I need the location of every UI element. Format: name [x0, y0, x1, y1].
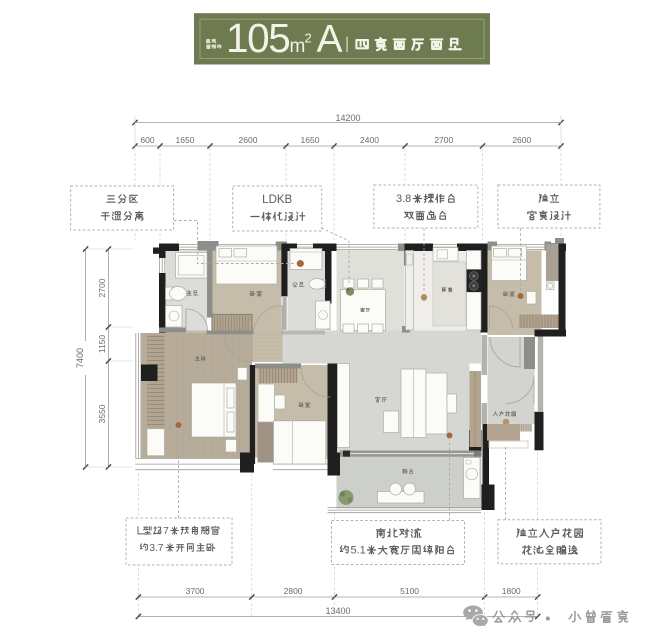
svg-text:600: 600: [140, 135, 154, 145]
svg-text:1650: 1650: [176, 135, 195, 145]
svg-text:2600: 2600: [512, 135, 531, 145]
svg-text:LDKB: LDKB: [262, 194, 292, 206]
svg-text:14200: 14200: [335, 113, 360, 123]
svg-text:1150: 1150: [97, 335, 107, 354]
svg-text:13400: 13400: [325, 606, 350, 616]
svg-text:3700: 3700: [186, 586, 205, 596]
svg-text:5100: 5100: [400, 586, 419, 596]
svg-text:2400: 2400: [360, 135, 379, 145]
svg-text:2800: 2800: [284, 586, 303, 596]
svg-text:A: A: [317, 18, 343, 61]
svg-text:1650: 1650: [301, 135, 320, 145]
svg-text:3.7: 3.7: [150, 543, 164, 554]
svg-text:3550: 3550: [97, 404, 107, 423]
svg-text:3.8: 3.8: [396, 193, 411, 205]
svg-text:2700: 2700: [97, 278, 107, 297]
svg-text:1800: 1800: [502, 586, 521, 596]
svg-text:2: 2: [305, 30, 312, 45]
svg-text:7: 7: [163, 526, 169, 537]
svg-text:m: m: [290, 36, 306, 57]
svg-text:2600: 2600: [239, 135, 258, 145]
svg-text:5.1: 5.1: [351, 545, 366, 557]
svg-text:7400: 7400: [75, 348, 85, 368]
svg-text:105: 105: [226, 15, 289, 61]
svg-text:2700: 2700: [434, 135, 453, 145]
